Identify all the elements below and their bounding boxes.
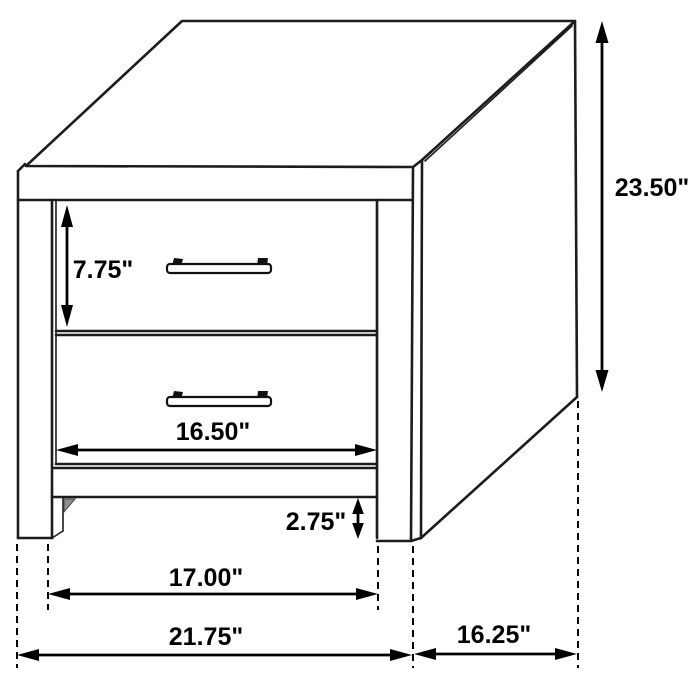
dim-drawer-width: 16.50" <box>56 418 377 456</box>
handle-bar <box>167 397 271 406</box>
nightstand-dimension-diagram: 23.50" 7.75" 16.50" 2.75" 17.00" 21.75" <box>0 0 700 700</box>
dim-label-overall-width: 21.75" <box>169 623 243 651</box>
arrowhead-down-icon <box>61 305 73 327</box>
dim-overall-width: 21.75" <box>17 623 412 661</box>
arrowhead-up-icon <box>352 498 364 514</box>
front-right-corner-inner-edge <box>411 167 413 541</box>
dim-top-drawer-height: 7.75" <box>61 205 133 327</box>
drawer-1-handle <box>167 258 271 273</box>
arrowhead-left-icon <box>414 648 436 660</box>
dim-label-top-drawer-height: 7.75" <box>73 256 134 284</box>
arrowhead-down-icon <box>596 370 609 392</box>
arrowhead-right-icon <box>356 588 378 600</box>
side-panel-bottom-edge <box>421 397 577 538</box>
arrowhead-left-icon <box>48 588 70 600</box>
arrowhead-left-icon <box>17 649 39 661</box>
dim-label-base-clearance: 2.75" <box>286 508 347 536</box>
side-panel-back-edge <box>575 21 577 397</box>
dimension-diagram-canvas: 23.50" 7.75" 16.50" 2.75" 17.00" 21.75" <box>0 0 700 700</box>
arrowhead-up-icon <box>596 21 609 43</box>
arrowhead-right-icon <box>355 444 377 456</box>
left-leg-side-bottom-edge <box>52 531 63 538</box>
dim-label-depth: 16.25" <box>457 621 531 649</box>
dim-label-drawer-width: 16.50" <box>176 418 250 446</box>
arrowhead-down-icon <box>352 523 364 539</box>
right-leg-bottom-edge <box>377 538 421 541</box>
dim-label-inner-leg-width: 17.00" <box>169 564 243 592</box>
dim-depth: 16.25" <box>414 621 577 660</box>
arrowhead-right-icon <box>555 648 577 660</box>
left-leg-corner-bracket <box>64 499 75 512</box>
table-top-surface <box>26 21 575 167</box>
arrowhead-up-icon <box>61 205 73 227</box>
dim-overall-height: 23.50" <box>596 21 690 392</box>
front-right-corner-outer-edge <box>421 160 422 538</box>
handle-bar <box>167 264 271 273</box>
top-left-chamfer-edge <box>18 164 25 171</box>
dim-base-clearance: 2.75" <box>286 498 364 539</box>
drawer-2-handle <box>167 391 271 406</box>
arrowhead-right-icon <box>390 649 412 661</box>
dim-label-overall-height: 23.50" <box>615 174 689 202</box>
arrowhead-left-icon <box>56 444 78 456</box>
dim-inner-leg-width: 17.00" <box>48 564 378 600</box>
